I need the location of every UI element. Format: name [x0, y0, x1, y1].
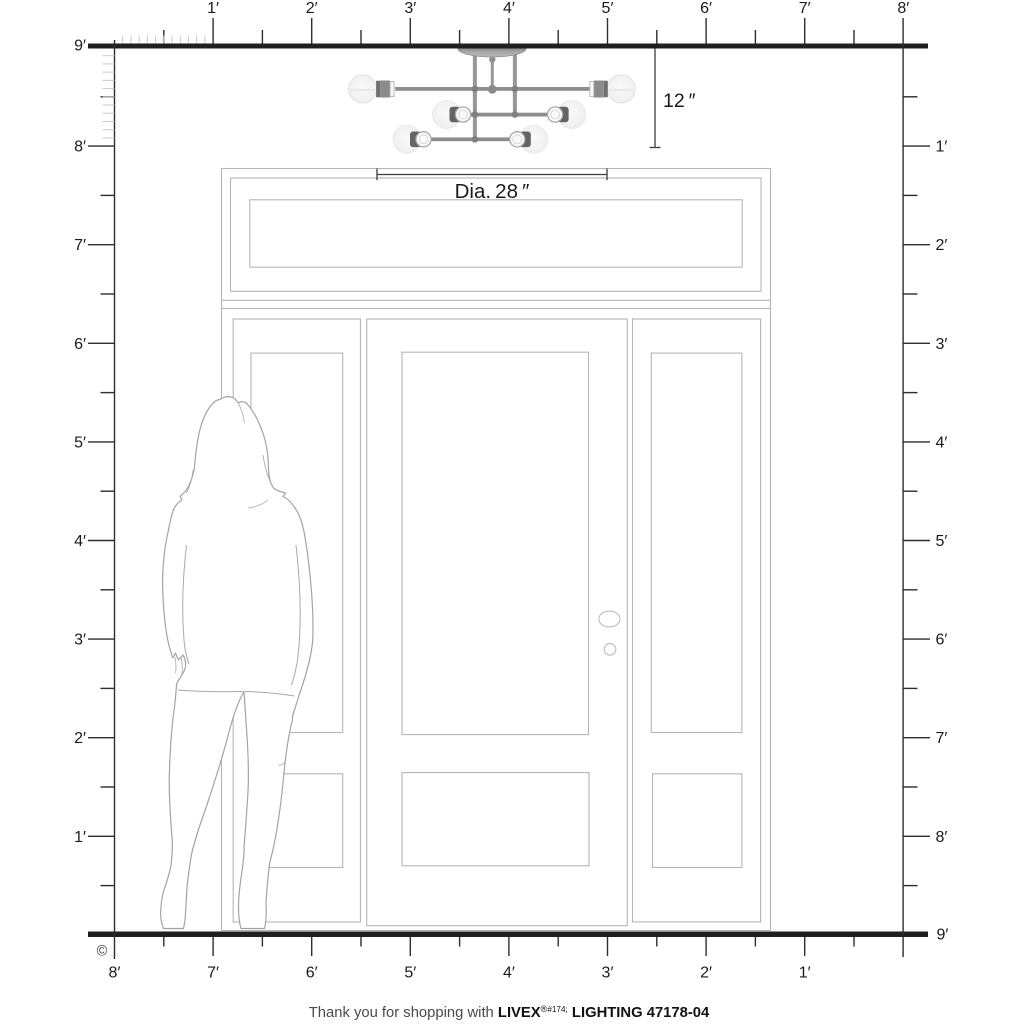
svg-text:1′: 1′	[936, 139, 948, 156]
svg-text:6′: 6′	[700, 0, 712, 17]
svg-text:3′: 3′	[74, 632, 86, 649]
svg-text:5′: 5′	[602, 0, 614, 17]
svg-text:7′: 7′	[799, 0, 811, 17]
svg-text:4′: 4′	[936, 434, 948, 451]
svg-text:3′: 3′	[404, 0, 416, 17]
svg-text:4′: 4′	[74, 533, 86, 550]
svg-text:1′: 1′	[207, 0, 219, 17]
svg-text:7′: 7′	[936, 730, 948, 747]
svg-text:7′: 7′	[74, 237, 86, 254]
svg-text:6′: 6′	[936, 632, 948, 649]
svg-text:4′: 4′	[503, 965, 515, 982]
svg-text:©: ©	[97, 944, 108, 960]
svg-text:Thank you for shopping with LI: Thank you for shopping with LIVEX®#174; …	[309, 1004, 710, 1021]
svg-text:2′: 2′	[700, 965, 712, 982]
svg-text:2′: 2′	[936, 237, 948, 254]
svg-text:2′: 2′	[306, 0, 318, 17]
svg-text:9′: 9′	[937, 927, 949, 944]
svg-text:6′: 6′	[306, 965, 318, 982]
svg-text:8′: 8′	[109, 965, 121, 982]
svg-text:5′: 5′	[404, 965, 416, 982]
svg-text:4′: 4′	[503, 0, 515, 17]
svg-text:3′: 3′	[936, 336, 948, 353]
svg-text:1′: 1′	[799, 965, 811, 982]
svg-text:7′: 7′	[207, 965, 219, 982]
svg-text:5′: 5′	[74, 434, 86, 451]
svg-text:8′: 8′	[936, 829, 948, 846]
svg-text:5′: 5′	[936, 533, 948, 550]
svg-text:8′: 8′	[897, 0, 909, 17]
svg-text:2′: 2′	[74, 730, 86, 747]
svg-text:9′: 9′	[74, 38, 86, 55]
svg-text:3′: 3′	[602, 965, 614, 982]
svg-text:1′: 1′	[74, 829, 86, 846]
svg-text:12 ″: 12 ″	[663, 90, 696, 112]
svg-text:Dia. 28 ″: Dia. 28 ″	[455, 180, 530, 203]
svg-text:6′: 6′	[74, 336, 86, 353]
svg-text:8′: 8′	[74, 139, 86, 156]
